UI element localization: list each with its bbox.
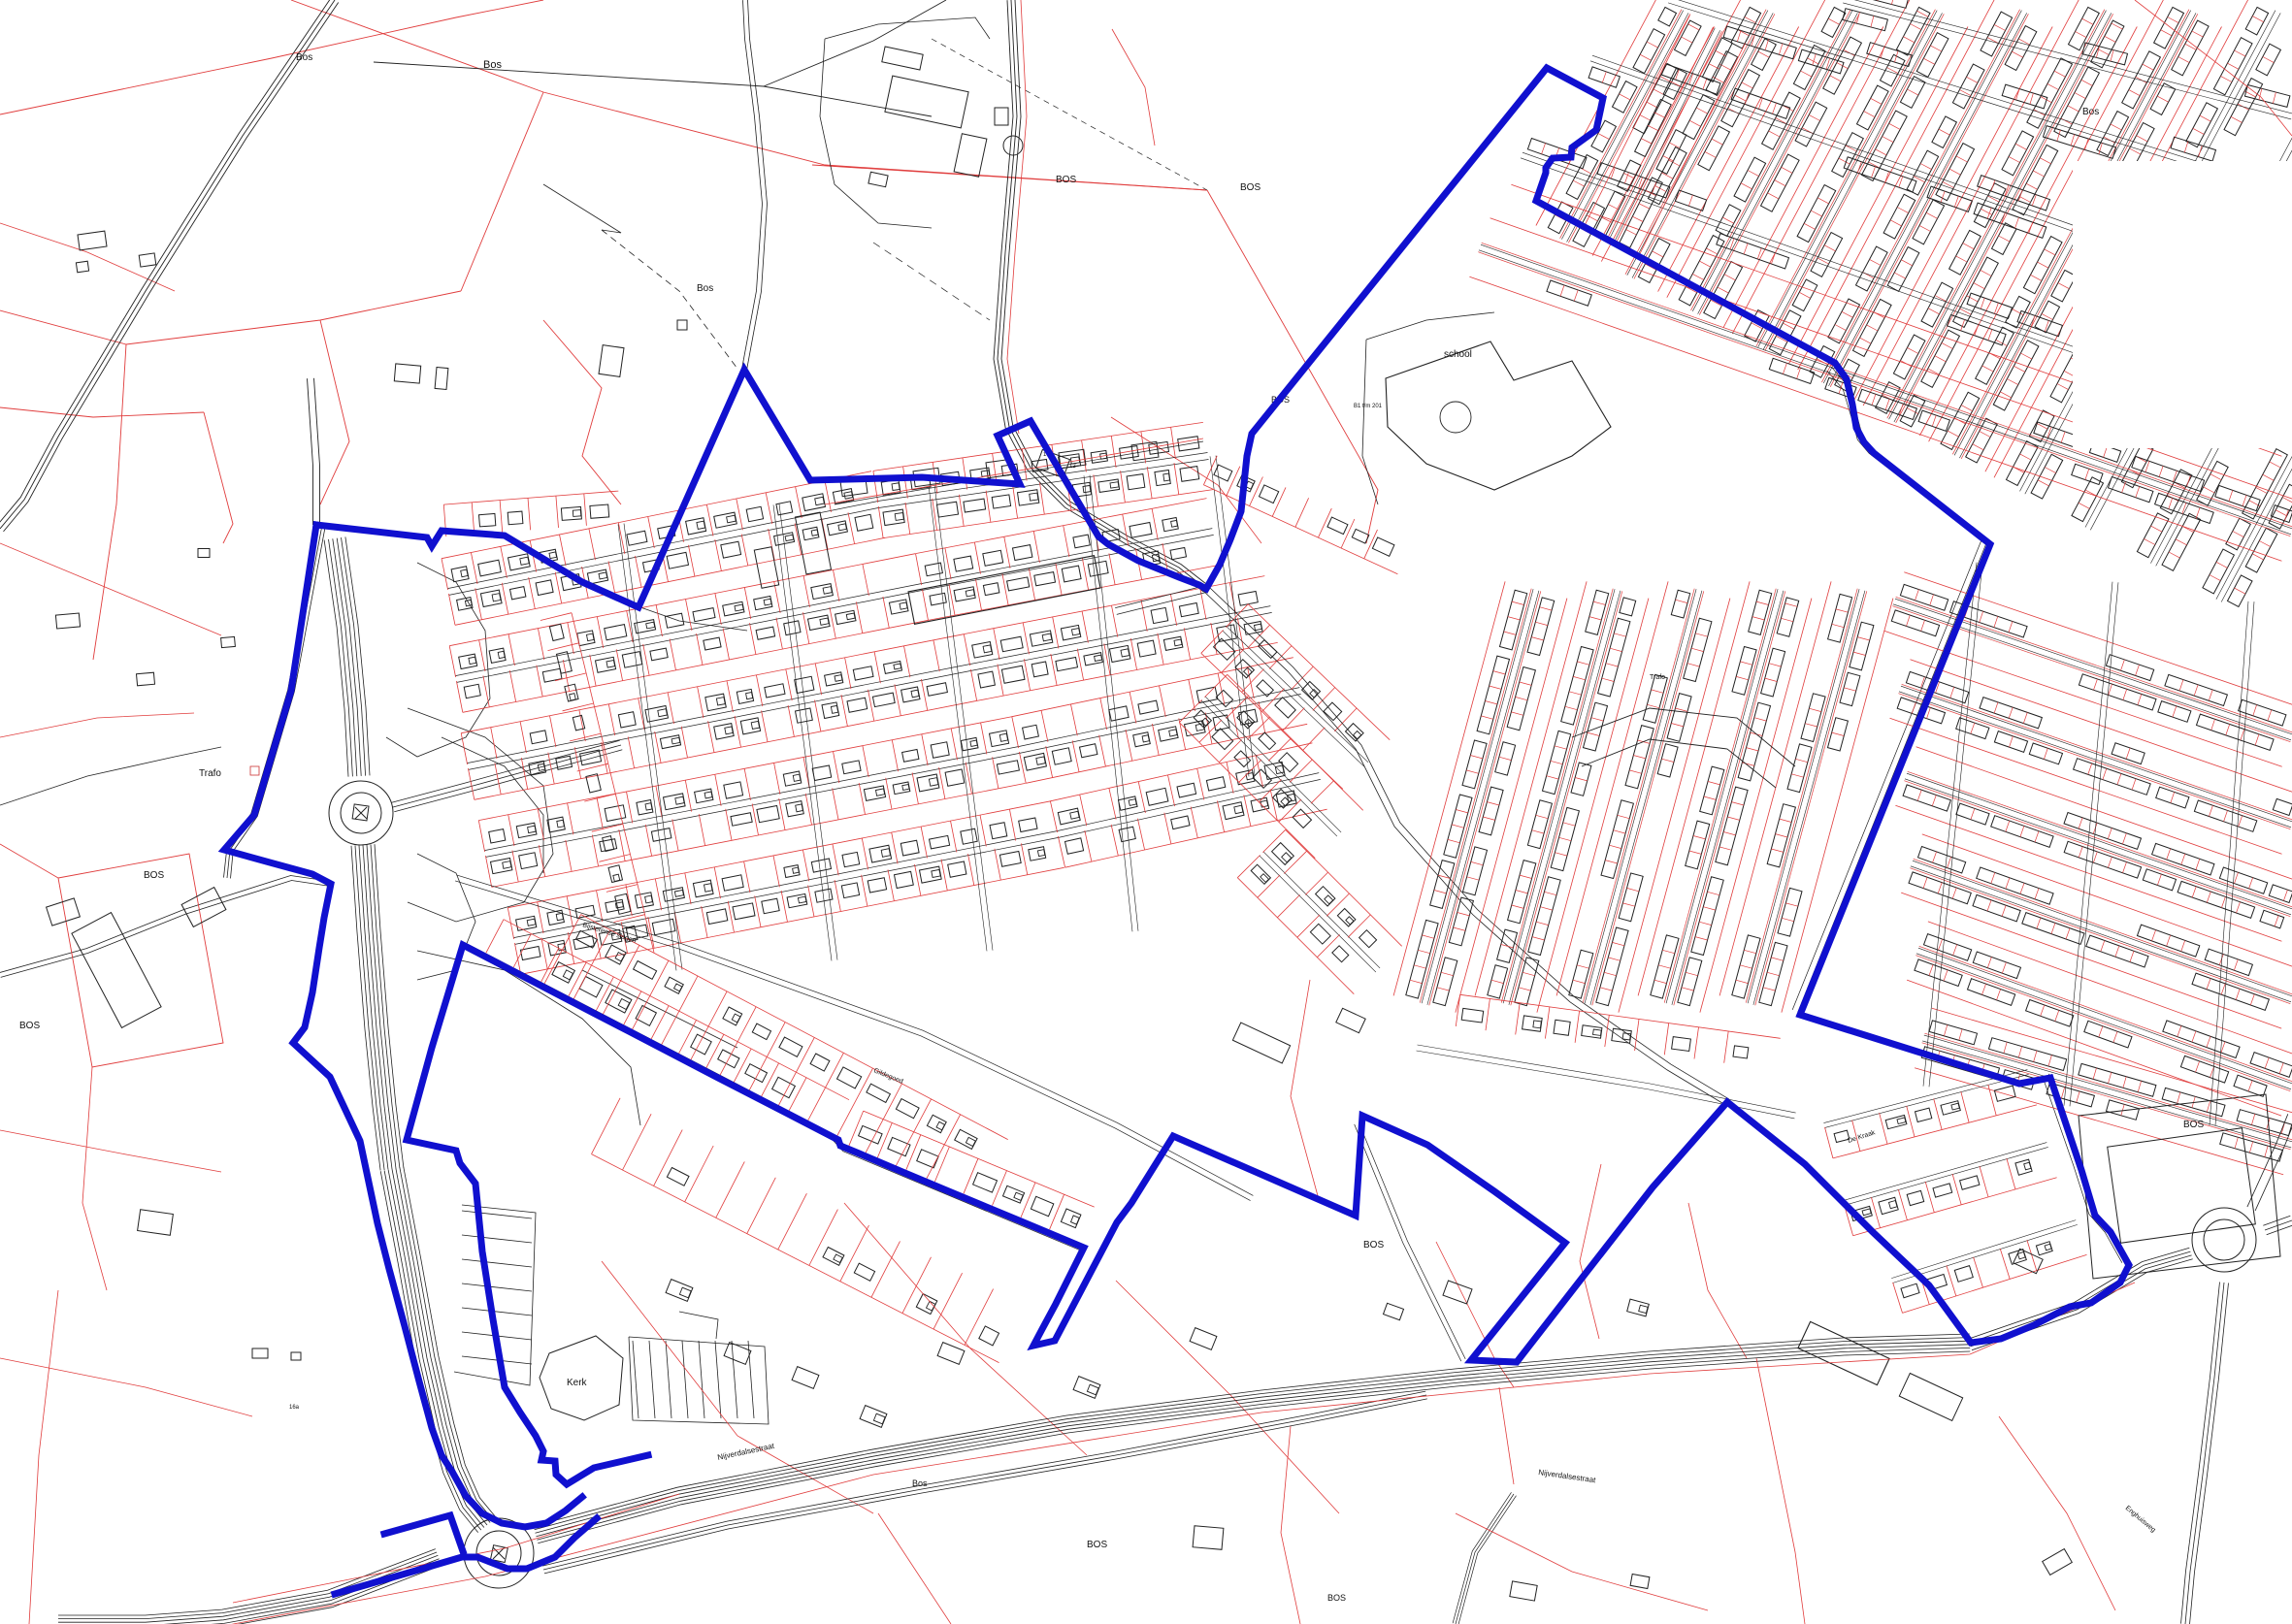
svg-text:BOS: BOS	[1056, 175, 1076, 185]
svg-text:Bos: Bos	[697, 283, 713, 294]
svg-text:Bos: Bos	[483, 59, 502, 71]
svg-text:school: school	[1444, 349, 1472, 360]
svg-text:Trafo: Trafo	[1650, 674, 1665, 681]
svg-text:BOS: BOS	[19, 1021, 40, 1031]
svg-text:BOS: BOS	[1240, 182, 1261, 193]
svg-text:12: 12	[1069, 464, 1076, 470]
svg-text:BOS: BOS	[1327, 1593, 1346, 1603]
svg-text:Trafo: Trafo	[199, 768, 221, 779]
svg-text:BOS: BOS	[2183, 1120, 2204, 1130]
svg-text:Bos: Bos	[912, 1478, 928, 1488]
svg-text:16a: 16a	[289, 1405, 300, 1411]
svg-text:BOS: BOS	[144, 870, 164, 881]
svg-text:Bos: Bos	[2082, 107, 2099, 117]
svg-text:BOS: BOS	[1363, 1240, 1384, 1250]
svg-text:BOS: BOS	[1087, 1540, 1107, 1550]
svg-text:Kerk: Kerk	[567, 1378, 588, 1388]
svg-text:Bos: Bos	[296, 52, 312, 63]
svg-text:B1 t/m 201: B1 t/m 201	[1354, 404, 1383, 409]
